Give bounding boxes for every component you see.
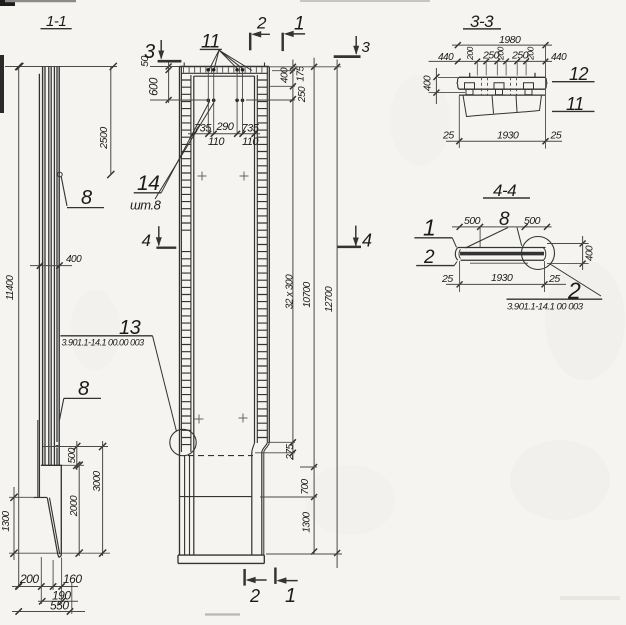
svg-text:3.901.1-14.1 00 003: 3.901.1-14.1 00 003 <box>507 302 584 313</box>
svg-text:3000: 3000 <box>92 470 103 491</box>
svg-text:шт.8: шт.8 <box>130 198 162 213</box>
svg-text:8: 8 <box>78 378 89 400</box>
svg-text:110: 110 <box>208 136 225 148</box>
svg-text:12: 12 <box>569 64 589 84</box>
svg-text:110: 110 <box>242 136 259 148</box>
svg-text:25: 25 <box>442 130 454 142</box>
svg-text:1: 1 <box>285 585 296 607</box>
svg-text:3: 3 <box>144 41 155 63</box>
svg-text:200: 200 <box>19 572 39 586</box>
svg-text:275: 275 <box>285 443 296 460</box>
svg-text:25: 25 <box>550 130 562 142</box>
svg-text:440: 440 <box>551 52 567 63</box>
svg-text:400: 400 <box>585 245 596 261</box>
svg-text:3.901.1-14.1 00.00 003: 3.901.1-14.1 00.00 003 <box>62 338 145 348</box>
svg-text:2500: 2500 <box>98 127 110 150</box>
svg-text:175: 175 <box>296 65 307 81</box>
svg-text:1: 1 <box>423 215 435 241</box>
svg-text:11400: 11400 <box>5 275 16 301</box>
svg-text:10700: 10700 <box>302 281 313 307</box>
svg-text:32 x 300: 32 x 300 <box>284 274 295 309</box>
svg-text:1-1: 1-1 <box>46 13 66 30</box>
svg-text:400: 400 <box>279 67 290 83</box>
svg-text:2000: 2000 <box>69 495 80 517</box>
svg-text:200: 200 <box>525 46 535 60</box>
svg-text:500: 500 <box>464 215 481 227</box>
svg-text:735: 735 <box>194 123 212 135</box>
svg-text:440: 440 <box>438 52 454 63</box>
svg-text:25: 25 <box>548 273 560 285</box>
svg-text:14: 14 <box>137 172 159 195</box>
svg-text:400: 400 <box>66 254 82 265</box>
svg-text:4-4: 4-4 <box>493 181 516 200</box>
svg-text:250: 250 <box>297 86 308 103</box>
svg-text:200: 200 <box>465 46 475 60</box>
svg-text:2: 2 <box>249 586 260 606</box>
svg-text:1980: 1980 <box>499 34 521 46</box>
svg-text:3: 3 <box>362 39 371 56</box>
svg-text:200: 200 <box>495 46 505 60</box>
svg-text:2: 2 <box>256 14 267 33</box>
svg-text:25: 25 <box>441 273 453 285</box>
svg-text:700: 700 <box>300 478 311 494</box>
svg-text:4: 4 <box>142 231 151 250</box>
svg-text:550: 550 <box>50 599 69 613</box>
svg-text:3-3: 3-3 <box>470 12 494 31</box>
svg-text:1930: 1930 <box>491 272 513 284</box>
svg-text:400: 400 <box>423 75 434 91</box>
svg-text:500: 500 <box>67 447 78 463</box>
svg-text:160: 160 <box>63 572 82 586</box>
svg-text:1930: 1930 <box>497 130 519 142</box>
svg-text:12700: 12700 <box>324 286 335 312</box>
svg-text:4: 4 <box>362 230 372 250</box>
svg-text:8: 8 <box>81 187 92 209</box>
svg-text:8: 8 <box>499 209 510 230</box>
svg-text:600: 600 <box>149 77 161 96</box>
svg-text:500: 500 <box>524 215 541 227</box>
svg-text:2: 2 <box>423 247 435 268</box>
svg-text:735: 735 <box>242 123 260 135</box>
svg-text:1: 1 <box>294 14 304 35</box>
svg-text:290: 290 <box>216 121 235 133</box>
svg-text:1300: 1300 <box>1 510 12 531</box>
svg-text:1300: 1300 <box>302 511 313 532</box>
